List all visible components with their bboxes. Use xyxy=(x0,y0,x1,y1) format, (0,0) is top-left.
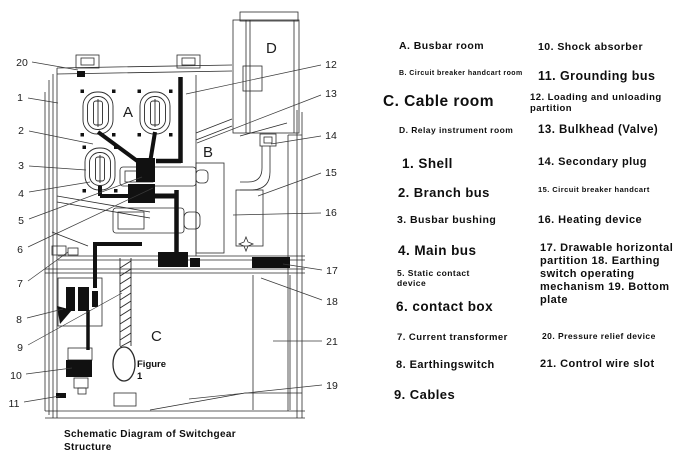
callout-number: 21 xyxy=(326,336,338,348)
callout-number: 11 xyxy=(9,398,20,410)
leader-line xyxy=(24,396,60,402)
legend-item: D. Relay instrument room xyxy=(399,125,513,135)
figure-note: Figure1 xyxy=(137,359,166,382)
legend-item: 15. Circuit breaker handcart xyxy=(538,186,650,195)
leader-line xyxy=(29,166,86,170)
callout-number: 3 xyxy=(18,160,24,172)
legend-item: 13. Bulkhead (Valve) xyxy=(538,124,658,138)
leader-line xyxy=(271,136,321,144)
leader-line xyxy=(261,278,322,300)
leader-line xyxy=(28,98,58,103)
legend-item: 10. Shock absorber xyxy=(538,41,643,53)
bulkhead-valve-duct xyxy=(236,134,276,246)
legend-item: 16. Heating device xyxy=(538,214,642,227)
legend-item: 21. Control wire slot xyxy=(540,358,655,371)
leader-line xyxy=(186,65,321,94)
solid-components xyxy=(56,71,290,398)
legend-item: 3. Busbar bushing xyxy=(397,214,496,226)
relay-room-box xyxy=(233,12,299,133)
leader-line xyxy=(258,173,321,196)
legend-item: 14. Secondary plug xyxy=(538,156,647,169)
legend-item: 20. Pressure relief device xyxy=(542,331,656,341)
callout-number: 10 xyxy=(10,370,22,382)
legend-item: A. Busbar room xyxy=(399,40,484,52)
leader-line xyxy=(28,252,68,281)
legend-item: 1. Shell xyxy=(402,156,453,172)
room-label: D xyxy=(266,40,277,57)
callout-number: 13 xyxy=(325,88,337,100)
leader-line xyxy=(28,188,153,247)
legend-item: B. Circuit breaker handcart room xyxy=(399,70,523,78)
legend-item: 12. Loading and unloading partition xyxy=(530,92,665,114)
legend-item: 17. Drawable horizontal partition 18. Ea… xyxy=(540,242,690,307)
legend-item: 2. Branch bus xyxy=(398,185,490,200)
legend-item: 8. Earthingswitch xyxy=(396,359,495,372)
callout-number: 8 xyxy=(16,314,22,326)
callout-number: 15 xyxy=(325,167,337,179)
callout-number: 2 xyxy=(18,125,24,137)
callout-number: 17 xyxy=(326,265,338,277)
legend-item: 9. Cables xyxy=(394,387,455,402)
room-label: C xyxy=(151,328,162,345)
legend-item: 5. Static contact device xyxy=(397,268,482,288)
legend-item: 4. Main bus xyxy=(398,243,476,259)
legend-item: 7. Current transformer xyxy=(397,332,508,343)
figure-note-layer: Figure1 xyxy=(137,359,166,382)
callout-number: 4 xyxy=(18,188,24,200)
callout-number: 18 xyxy=(326,296,338,308)
callout-number: 19 xyxy=(326,380,338,392)
callout-number: 7 xyxy=(17,278,23,290)
callout-number: 5 xyxy=(18,215,24,227)
room-label: A xyxy=(123,104,133,121)
callout-number: 16 xyxy=(325,207,337,219)
callout-layer: 201234567891011121314151617182119 xyxy=(9,57,338,410)
leader-line xyxy=(29,131,93,144)
breaker-room-frame xyxy=(113,163,253,253)
leader-line xyxy=(32,62,78,70)
schematic-page: ABCD 201234567891011121314151617182119 F… xyxy=(0,0,690,462)
callout-number: 20 xyxy=(16,57,28,69)
callout-number: 9 xyxy=(17,342,23,354)
callout-number: 6 xyxy=(17,244,23,256)
leader-line xyxy=(233,213,321,215)
figure-caption: Schematic Diagram of Switchgear Structur… xyxy=(64,428,269,454)
leader-line xyxy=(29,182,90,192)
callout-number: 14 xyxy=(325,130,337,142)
hatched-cable xyxy=(113,258,135,381)
room-label: B xyxy=(203,144,213,161)
legend-item: 6. contact box xyxy=(396,299,493,315)
legend-item: C. Cable room xyxy=(383,93,494,111)
legend-item: 11. Grounding bus xyxy=(538,69,655,84)
callout-number: 12 xyxy=(325,59,337,71)
callout-number: 1 xyxy=(17,92,23,104)
